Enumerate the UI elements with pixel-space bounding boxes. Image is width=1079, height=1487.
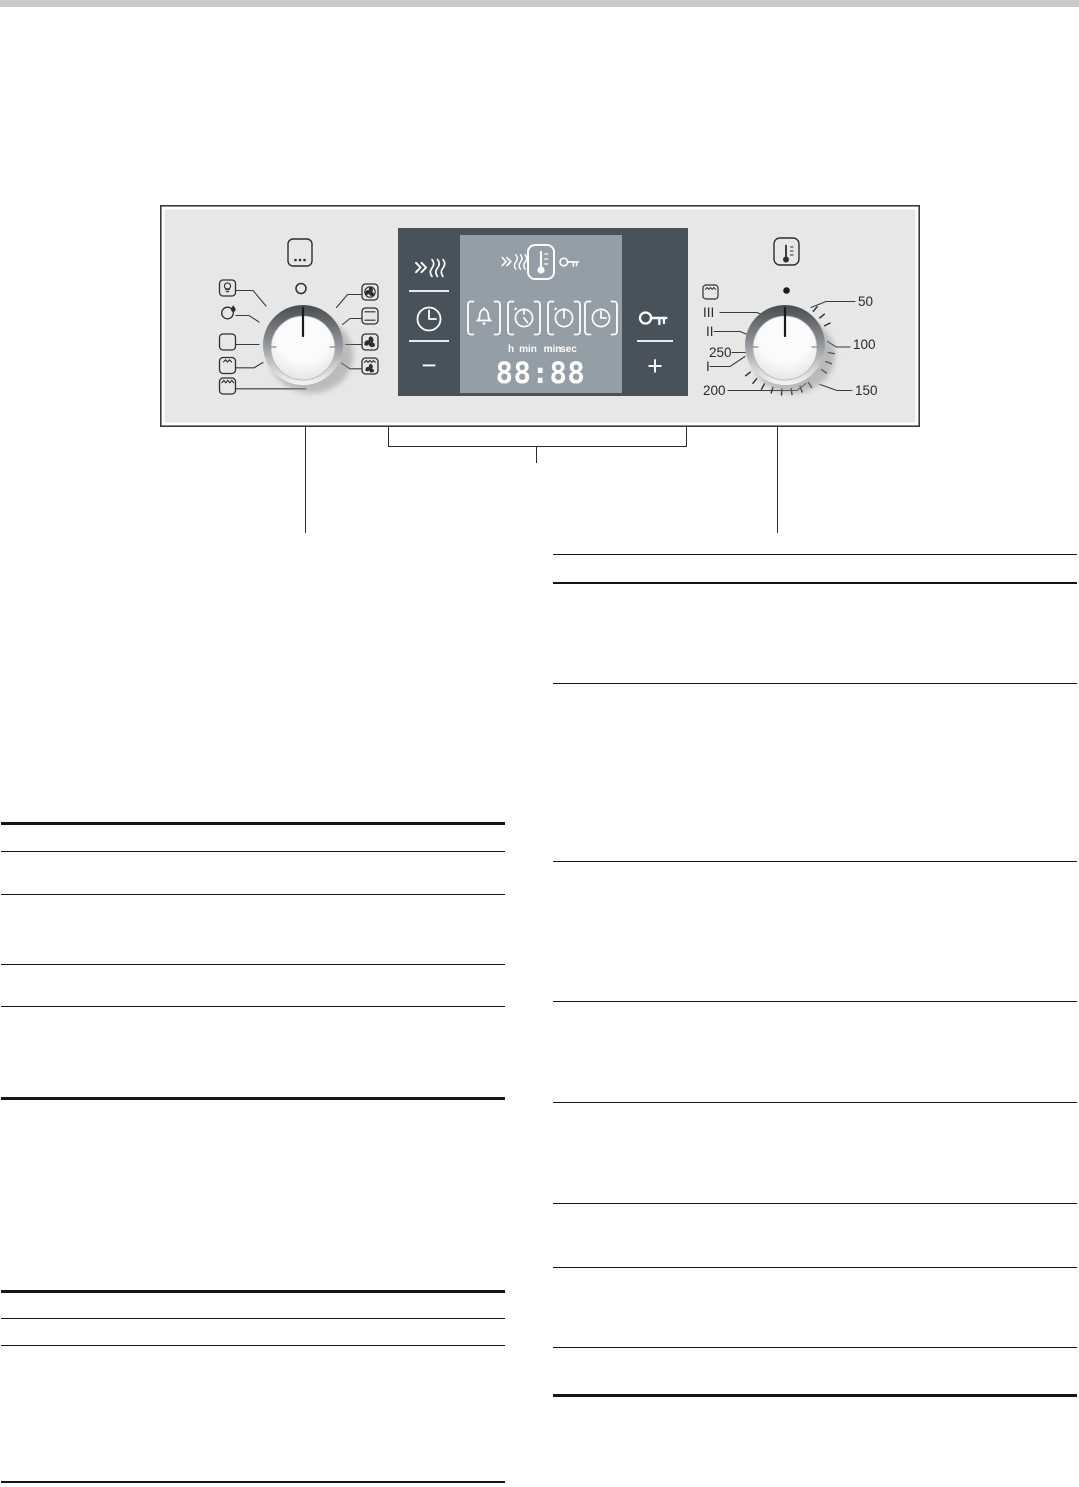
time-display: 88:88 — [496, 356, 586, 390]
plus-button: + — [647, 351, 663, 381]
display-panel: − — [398, 228, 688, 396]
table-rule — [1, 1481, 505, 1483]
table-rule — [553, 582, 1077, 584]
scale-label-150: 150 — [855, 383, 878, 398]
unit-label-min1: min — [519, 344, 537, 355]
manual-page: − — [0, 0, 1079, 1487]
unit-label-sec: sec — [560, 344, 577, 355]
scale-label-III: III — [703, 305, 714, 320]
table-rule — [1, 964, 505, 965]
table-rule — [553, 1394, 1077, 1397]
table-rule — [553, 1102, 1077, 1103]
callout-bracket-right — [686, 427, 687, 447]
scale-label-I: I — [706, 359, 710, 374]
table-rule — [553, 1001, 1077, 1002]
table-rule — [553, 554, 1077, 555]
scale-label-II: II — [706, 324, 714, 339]
unit-label-min2: min — [544, 344, 562, 355]
table-rule — [553, 1267, 1077, 1268]
table-rule — [1, 1006, 505, 1007]
scale-label-200: 200 — [703, 383, 726, 398]
knob-position-dot-icon — [783, 287, 790, 294]
table-rule — [1, 822, 505, 825]
callout-bracket-tick — [536, 446, 537, 463]
callout-line-temperature-knob — [777, 427, 778, 533]
scale-label-100: 100 — [853, 337, 876, 352]
minus-button: − — [421, 350, 436, 380]
control-panel-illustration: − — [160, 205, 920, 427]
page-top-band — [0, 0, 1079, 7]
table-rule — [1, 894, 505, 895]
callout-line-function-knob — [305, 427, 306, 533]
table-rule — [553, 1347, 1077, 1348]
table-rule — [1, 851, 505, 852]
table-rule — [553, 683, 1077, 684]
table-rule — [1, 1318, 505, 1319]
table-rule — [553, 1203, 1077, 1204]
table-rule — [1, 1345, 505, 1346]
scale-label-250: 250 — [709, 345, 732, 360]
table-rule — [1, 1290, 505, 1293]
table-rule — [553, 861, 1077, 862]
scale-label-50: 50 — [858, 294, 873, 309]
unit-label-h: h — [508, 344, 514, 355]
callout-bracket-left — [388, 427, 389, 447]
table-rule — [1, 1097, 505, 1100]
callout-bracket-bottom — [388, 446, 687, 447]
